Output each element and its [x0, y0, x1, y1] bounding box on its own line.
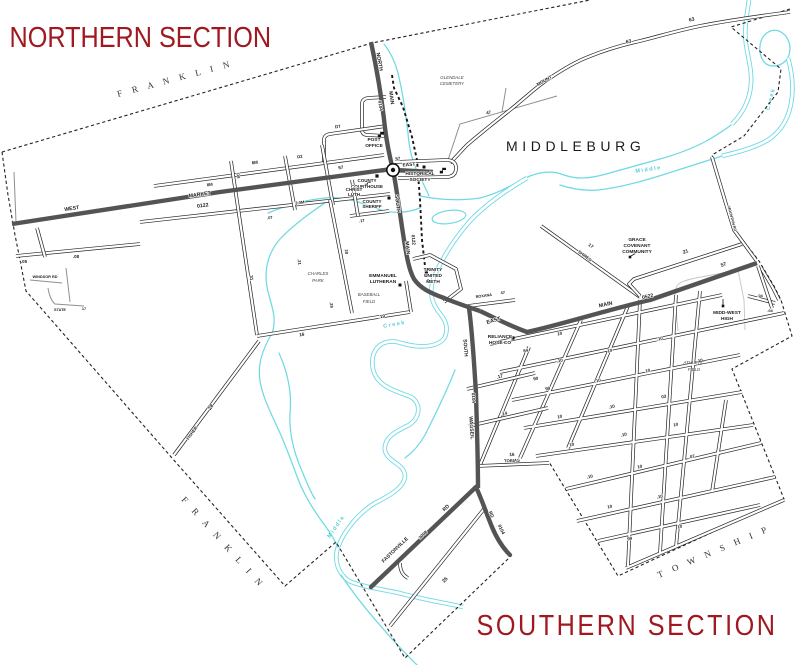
svg-text:SOUTHERN SECTION: SOUTHERN SECTION	[477, 608, 778, 641]
svg-text:17: 17	[82, 307, 86, 311]
svg-text:BASEBALL: BASEBALL	[358, 292, 381, 297]
svg-text:.04: .04	[757, 293, 763, 298]
svg-text:COVENANT: COVENANT	[624, 243, 651, 249]
svg-text:UNITED: UNITED	[424, 273, 442, 279]
svg-text:HISTORICAL: HISTORICAL	[405, 171, 434, 177]
svg-text:.04: .04	[767, 308, 773, 313]
svg-text:ATHLETIC: ATHLETIC	[683, 360, 706, 365]
svg-text:OFFICE: OFFICE	[365, 143, 383, 149]
svg-text:HOSE CO: HOSE CO	[489, 340, 511, 346]
svg-text:TOBIAS: TOBIAS	[504, 458, 520, 464]
svg-text:SOCIETY: SOCIETY	[409, 177, 431, 183]
svg-text:LUTHERAN: LUTHERAN	[370, 279, 397, 285]
svg-text:MIDDLEBURG: MIDDLEBURG	[506, 138, 645, 154]
svg-text:METH: METH	[426, 279, 440, 285]
svg-text:EMMANUEL: EMMANUEL	[369, 273, 397, 279]
svg-text:STATE: STATE	[54, 308, 66, 312]
svg-text:FIELD: FIELD	[363, 299, 376, 304]
svg-text:COMMUNITY: COMMUNITY	[622, 249, 652, 255]
svg-text:COUNTY: COUNTY	[358, 178, 377, 183]
svg-text:CEMETERY: CEMETERY	[440, 81, 465, 86]
svg-text:.19: .19	[378, 313, 386, 319]
svg-text:.08: .08	[73, 254, 80, 259]
svg-text:MIDD-WEST: MIDD-WEST	[713, 310, 741, 316]
svg-text:PARK: PARK	[312, 278, 325, 283]
svg-text:GRACE: GRACE	[628, 237, 646, 243]
svg-text:WINDSOR RD: WINDSOR RD	[33, 275, 58, 279]
svg-text:FIELD: FIELD	[688, 367, 701, 372]
svg-text:NORTHERN SECTION: NORTHERN SECTION	[10, 20, 272, 53]
svg-text:16: 16	[509, 452, 515, 457]
svg-text:CHARLES: CHARLES	[308, 271, 329, 276]
svg-text:TRINITY: TRINITY	[424, 267, 443, 273]
svg-text:6M: 6M	[251, 160, 258, 166]
svg-text:EAST: EAST	[402, 162, 415, 169]
svg-text:HIGH: HIGH	[721, 316, 734, 322]
svg-text:LUTH: LUTH	[348, 192, 360, 197]
svg-text:0104: 0104	[471, 393, 477, 404]
svg-text:GLENDALE: GLENDALE	[440, 75, 463, 80]
svg-text:POST: POST	[367, 137, 380, 143]
svg-text:RELIANCE: RELIANCE	[488, 334, 513, 340]
svg-text:.05: .05	[21, 259, 28, 264]
svg-text:SHERIFF: SHERIFF	[362, 204, 382, 209]
svg-text:SOUTH: SOUTH	[461, 339, 468, 357]
